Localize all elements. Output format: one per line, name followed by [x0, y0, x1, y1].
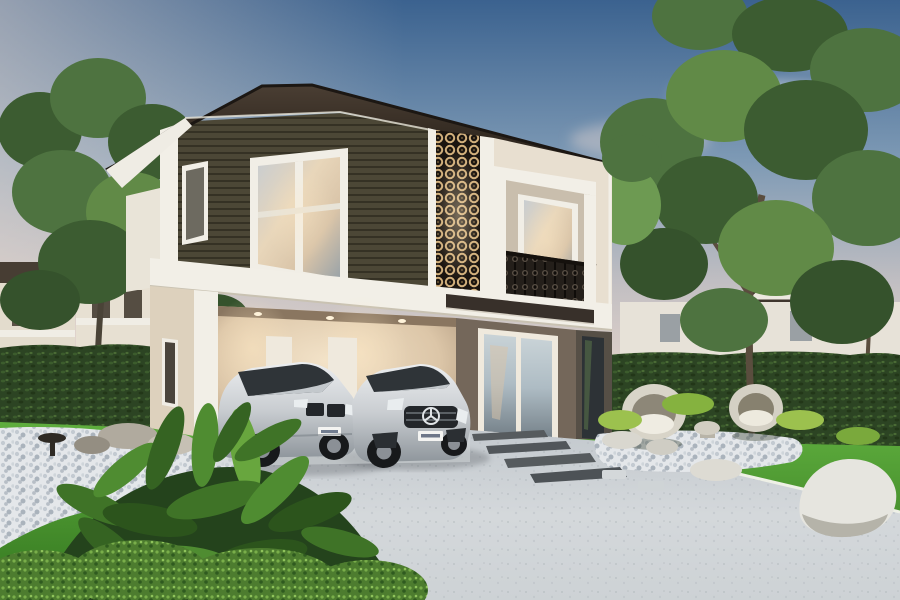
window-glass	[186, 167, 204, 240]
foliage-blob	[680, 288, 768, 352]
neighbor-band	[76, 318, 160, 325]
neighbor-band	[0, 330, 75, 337]
rock	[646, 439, 678, 455]
foliage-overlap	[602, 134, 662, 182]
house-rendering	[0, 0, 900, 600]
chair-cushion	[739, 410, 773, 426]
downlight	[326, 316, 334, 320]
accent-plant	[662, 393, 714, 415]
rock	[74, 436, 110, 454]
kidney-grille	[306, 403, 324, 416]
foliage-blob	[0, 270, 80, 330]
window-glow	[264, 167, 336, 263]
small-upper-window	[182, 161, 208, 245]
chair-shadow	[732, 431, 780, 441]
rock	[602, 431, 642, 449]
headlight	[294, 399, 308, 408]
entry-door-glass	[521, 338, 552, 437]
hedge-left	[0, 344, 162, 432]
balcony-pillar-right	[584, 194, 596, 318]
bumper-intake	[372, 432, 398, 448]
bumper-intake	[446, 428, 466, 442]
downlight	[398, 319, 406, 323]
right-ground-bay	[576, 330, 612, 448]
car-right-hatchback	[352, 364, 470, 468]
paver-light	[638, 481, 664, 491]
kidney-grille	[327, 404, 345, 417]
render-canvas	[0, 0, 900, 600]
balcony-pillar-left	[494, 176, 506, 304]
garden-lantern-top	[38, 433, 66, 443]
downlight	[254, 312, 262, 316]
paver-light	[602, 470, 626, 479]
lattice-glow	[434, 149, 482, 281]
neighbor-window	[660, 314, 680, 342]
wheel-rim	[327, 439, 341, 453]
foliage-blob	[790, 260, 894, 344]
accent-plant	[598, 410, 642, 430]
plate-text-smudge	[421, 434, 440, 438]
side-window-glass	[165, 342, 175, 404]
upper-window	[250, 148, 348, 288]
plate-text-smudge	[321, 430, 338, 433]
rock	[690, 459, 742, 481]
lattice-trim-right	[480, 136, 494, 305]
side-table-top	[694, 421, 720, 435]
accent-plant	[836, 427, 880, 445]
accent-plant	[776, 410, 824, 430]
side-window	[162, 338, 178, 408]
lattice-screen	[428, 128, 494, 305]
neighbor-window	[124, 290, 142, 320]
